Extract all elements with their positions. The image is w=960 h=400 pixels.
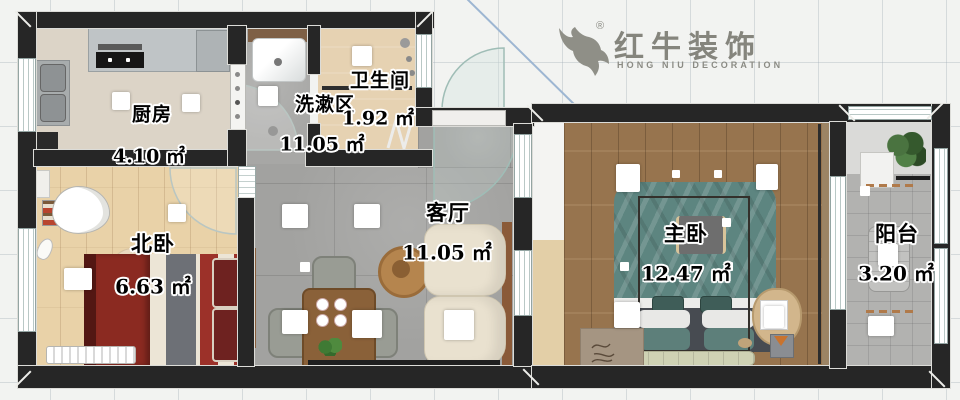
ceiling-light [764,306,784,328]
bed-bench [633,351,755,366]
shower-head [400,38,410,48]
fridge [196,30,230,72]
brand-subtitle: HONG NIU DECORATION [617,60,783,70]
room-area-living-room: 11.05 ㎡ [402,237,492,266]
kitchen-window [18,58,36,132]
room-label-north-bedroom: 北卧 [131,228,175,258]
planter-pot [860,152,894,188]
ceiling-light [282,310,308,334]
balcony-window-upper [934,148,948,244]
entry-door-threshold [432,110,506,126]
room-area-bathroom: 1.92 ㎡ [342,104,414,131]
spot-light [860,186,870,196]
wall-right [932,104,950,388]
plate [316,298,329,311]
wall-top-left-block [18,12,434,28]
ceiling-light [614,302,640,328]
floor-plan-canvas: 厨房 4.10 ㎡ 洗漱区 11.05 ㎡ 卫生间 1.92 ㎡ 北卧 6.63… [0,0,960,400]
room-label-master-bedroom: 主卧 [664,218,708,248]
room-area-master-bedroom: 12.47 ㎡ [641,258,731,287]
kitchen-cabinet [34,132,58,150]
brand-logo: ® 红牛装饰 HONG NIU DECORATION [556,20,786,82]
laundry-pole [866,310,914,313]
ceiling-light [112,92,130,110]
master-balcony-window [830,176,846,310]
ceiling-light [64,268,92,290]
room-label-living-room: 客厅 [426,197,470,227]
table-plant [318,338,342,356]
spot-light [620,262,629,271]
fixture-dots [235,72,240,77]
bag-flap [774,336,788,346]
sink-bowl [40,64,66,92]
plate [334,314,347,327]
wall-kitchen-wash-divider-low [228,130,246,166]
ceiling-light [352,310,382,338]
entry-sidelight-window [416,34,432,88]
side-cabinet [36,170,50,198]
living-window-upper [514,134,532,198]
spot-light [722,218,731,227]
wall-bottom-left-block [18,366,534,388]
room-label-bathroom: 卫生间 [350,66,410,93]
curtain-track [818,124,821,364]
wardrobe-strip [532,240,565,366]
wardrobe-right [822,122,830,368]
spot-light [672,170,680,178]
room-area-north-bedroom: 6.63 ㎡ [115,271,191,300]
sink-bowl [40,94,66,122]
glass-partition [238,166,256,200]
closet-strip [532,122,565,240]
ceiling-light [868,316,894,336]
range-hood [98,44,142,50]
tray [738,338,752,348]
stove-burner [126,58,130,62]
room-area-kitchen: 4.10 ㎡ [113,142,185,169]
ceiling-light [354,204,380,228]
stove [96,52,144,68]
north-bedroom-window [18,228,36,332]
wall-kitchen-wash-divider [228,26,246,64]
ceiling-light [444,310,474,340]
basin-drain [274,58,282,66]
wall-north-living-divider [238,198,254,366]
ceiling-light [352,46,372,66]
registered-mark: ® [596,20,604,32]
bull-logo-icon [556,26,610,78]
entry-door-arc [442,48,504,110]
balcony-window-lower [934,248,948,344]
tv-console [308,360,500,365]
room-area-balcony: 3.20 ㎡ [858,258,934,287]
ceiling-light [258,86,278,106]
ceiling-light [616,164,640,192]
room-area-washroom: 11.05 ㎡ [279,130,364,157]
radiator [46,346,136,364]
room-label-kitchen: 厨房 [132,100,172,127]
ceiling-light [282,204,308,228]
plate [334,298,347,311]
room-label-balcony: 阳台 [875,218,919,248]
ceiling-light [182,94,200,112]
wall-wash-bath-divider [308,26,320,74]
plant-shelf [896,176,930,180]
floor-drain [268,126,278,136]
wall-master-bottom [532,366,950,388]
ceiling-light [756,164,778,190]
laundry-pole [866,184,914,187]
stove-burner [108,58,112,62]
spot-light [714,170,722,178]
shower-control [406,56,412,62]
ceiling-light [168,204,186,222]
plate [316,314,329,327]
living-window-lower [514,250,532,316]
spot-light [300,262,310,272]
entry-hall-floor [418,124,518,168]
balcony-top-window [848,106,932,120]
